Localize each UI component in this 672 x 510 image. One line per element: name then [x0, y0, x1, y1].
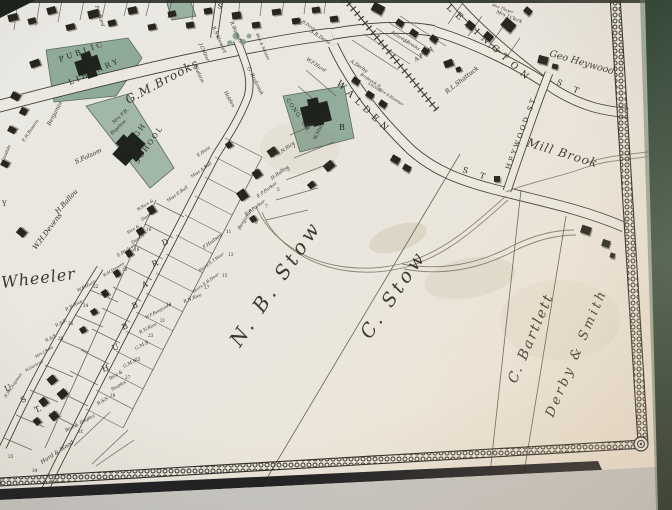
lot-number: 19	[166, 302, 172, 307]
lot-number: 22	[93, 284, 99, 289]
building-footprint	[252, 21, 261, 28]
lot-number: 21	[160, 318, 166, 323]
paper-stain	[500, 280, 620, 360]
lot-number: 20	[122, 267, 128, 272]
lot-number: 31	[78, 429, 84, 434]
lot-number: 13	[228, 252, 234, 257]
lot-number: 26	[68, 321, 74, 326]
border-corner-rosette-dot	[640, 443, 642, 445]
lot-number: 7	[265, 204, 268, 209]
lot-number: 24	[83, 303, 89, 308]
map-canvas: PUBLICLIBRARYHIGHSCHOOLCONG. CH.WALDENS …	[0, 0, 672, 510]
lot-number: 33	[8, 454, 14, 459]
lot-number: 16	[146, 227, 152, 232]
lot-number: 29	[110, 393, 116, 398]
tree-symbol	[247, 34, 252, 39]
lot-number: 18	[134, 247, 140, 252]
photo-top-edge	[0, 0, 672, 3]
lot-number: 25	[135, 357, 141, 362]
building-footprint	[494, 176, 500, 182]
lot-number: 9	[255, 220, 258, 225]
lot-number: 23	[148, 333, 154, 338]
building-footprint	[232, 11, 242, 19]
atlas-map-photo: PUBLICLIBRARYHIGHSCHOOLCONG. CH.WALDENS …	[0, 0, 672, 510]
building-footprint	[330, 15, 339, 22]
lot-number: 17	[204, 285, 210, 290]
lot-number: 15	[222, 273, 228, 278]
building-footprint	[312, 6, 321, 13]
map-label: Y	[1, 200, 7, 208]
lot-number: 11	[226, 229, 232, 234]
lot-number: 28	[58, 336, 64, 341]
tree-symbol	[227, 40, 233, 46]
lot-number: 34	[32, 468, 38, 473]
lot-number: 5	[277, 187, 280, 192]
lot-number: 27	[125, 375, 131, 380]
map-label: B	[339, 123, 345, 132]
paper-stain	[260, 122, 340, 174]
building-footprint	[272, 8, 282, 15]
